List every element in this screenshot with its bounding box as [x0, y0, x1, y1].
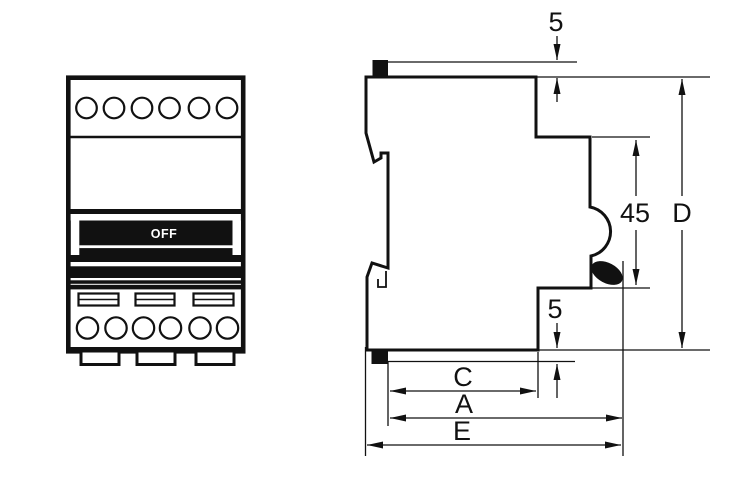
- terminal-screw-hole: [189, 317, 210, 338]
- rocker-notch-right: [233, 221, 242, 256]
- dim-bottom-clearance: 5: [547, 294, 562, 398]
- terminal-screw-hole: [104, 98, 125, 119]
- drawing-page: OFF: [0, 0, 745, 493]
- off-label: OFF: [151, 227, 178, 241]
- terminal-screw-hole: [77, 317, 98, 338]
- rocker-split-line: [79, 245, 232, 248]
- dim-width-c: C: [390, 362, 536, 392]
- dim-width-e: E: [367, 416, 621, 446]
- switch-recess-edge: [71, 209, 242, 214]
- terminal-screw-hole: [159, 98, 180, 119]
- dim-recess-height: 45: [620, 140, 650, 285]
- dim-label-45: 45: [620, 198, 650, 228]
- dim-label-C: C: [453, 362, 473, 392]
- breaker-case-outline: [68, 78, 243, 352]
- terminal-screw-hole: [217, 317, 238, 338]
- terminal-screw-hole: [189, 98, 210, 119]
- mounting-tab: [196, 351, 234, 365]
- terminal-screw-hole: [160, 317, 181, 338]
- dim-label-A: A: [455, 389, 473, 419]
- breaker-side-profile: [366, 77, 611, 350]
- terminal-screw-hole: [132, 98, 153, 119]
- terminal-screw-hole: [217, 98, 238, 119]
- side-view: [366, 60, 627, 364]
- dim-label-bottom-5: 5: [547, 294, 562, 324]
- dim-label-E: E: [453, 416, 471, 446]
- off-switch: OFF: [71, 221, 242, 263]
- mounting-tabs: [71, 347, 242, 365]
- dim-width-a: A: [390, 389, 622, 419]
- toggle-handle: [587, 256, 626, 290]
- terminal-screw-hole: [105, 317, 126, 338]
- mounting-tab: [81, 351, 119, 365]
- dim-label-top-5: 5: [548, 7, 563, 37]
- front-view: OFF: [68, 78, 243, 365]
- dim-overall-height: D: [672, 79, 692, 348]
- rocker-notch-left: [71, 221, 80, 256]
- face-stripe: [71, 266, 242, 278]
- terminal-screw-hole: [76, 98, 97, 119]
- technical-drawing: OFF: [0, 0, 745, 493]
- face-stripe-thin: [71, 280, 242, 284]
- din-clip-top: [373, 60, 389, 77]
- din-clip-bottom: [372, 351, 389, 365]
- terminal-block-top-edge: [71, 285, 242, 290]
- dim-label-D: D: [672, 198, 692, 228]
- dim-top-clearance: 5: [548, 7, 563, 102]
- mounting-tab: [137, 351, 175, 365]
- terminal-screw-hole: [133, 317, 154, 338]
- terminal-slots: [79, 294, 234, 306]
- case-bottom-edge: [71, 347, 242, 352]
